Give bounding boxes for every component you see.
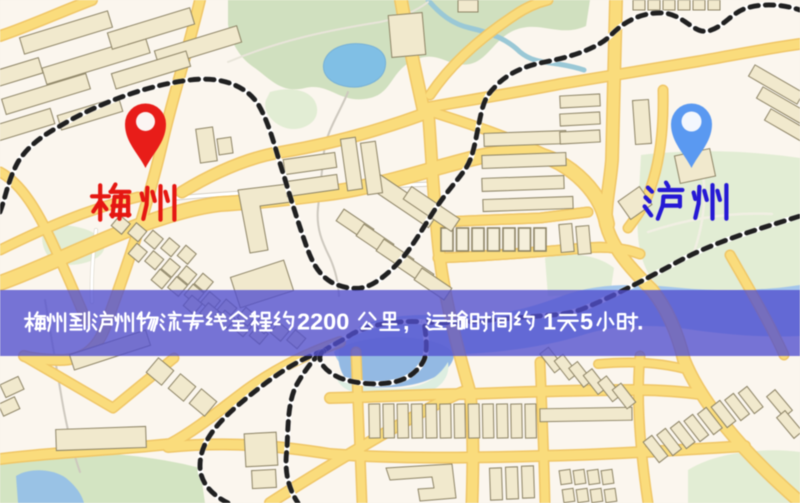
svg-text:.: . [637, 309, 644, 335]
svg-text:,: , [403, 309, 410, 335]
svg-text:1: 1 [543, 309, 556, 335]
svg-text:2200: 2200 [297, 309, 349, 335]
svg-text:5: 5 [580, 309, 593, 335]
